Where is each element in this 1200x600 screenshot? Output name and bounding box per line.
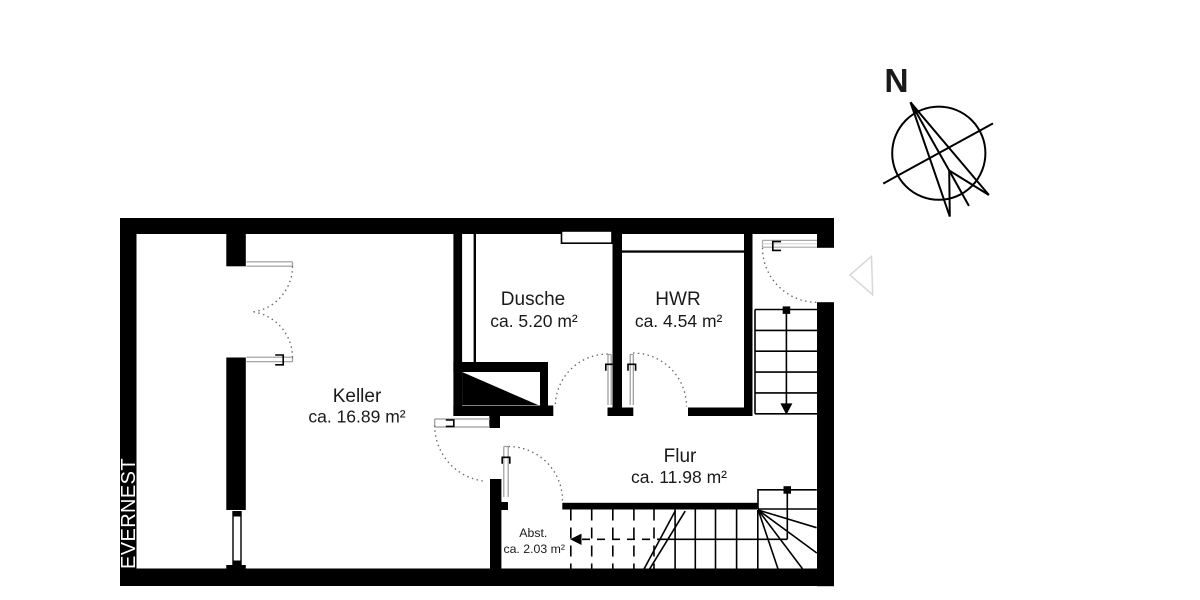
svg-text:ca. 4.54 m²: ca. 4.54 m² <box>635 311 723 331</box>
svg-text:Abst.: Abst. <box>519 526 547 540</box>
svg-text:HWR: HWR <box>655 289 700 310</box>
svg-text:N: N <box>884 63 908 100</box>
svg-text:ca. 2.03 m²: ca. 2.03 m² <box>503 542 565 556</box>
svg-text:ca. 5.20 m²: ca. 5.20 m² <box>490 311 578 331</box>
svg-text:Flur: Flur <box>664 446 697 467</box>
svg-text:ca. 16.89 m²: ca. 16.89 m² <box>308 407 405 427</box>
svg-text:EVERNEST: EVERNEST <box>118 458 140 569</box>
svg-text:Dusche: Dusche <box>501 289 565 310</box>
svg-text:ca. 11.98 m²: ca. 11.98 m² <box>631 467 727 487</box>
svg-text:Keller: Keller <box>333 386 382 407</box>
